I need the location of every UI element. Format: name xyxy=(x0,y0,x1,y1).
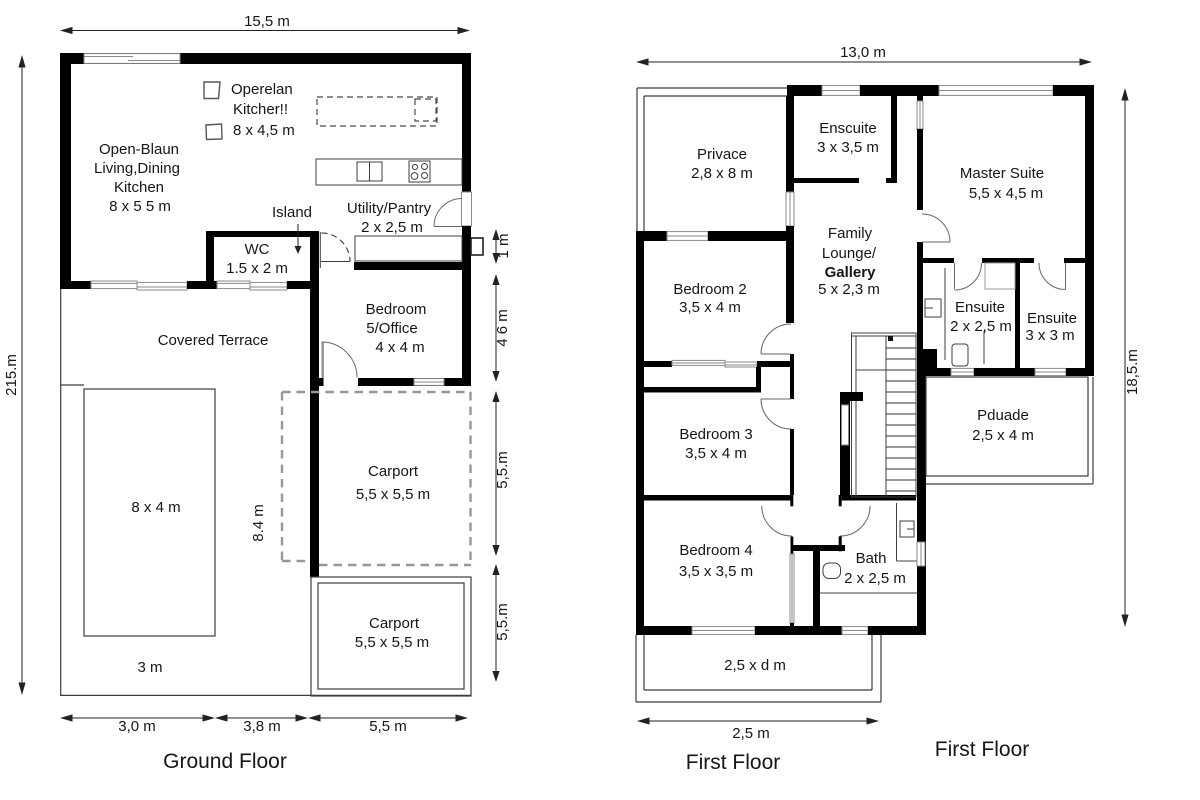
svg-text:Open-Blaun: Open-Blaun xyxy=(99,141,179,158)
svg-text:Bath: Bath xyxy=(856,550,887,567)
svg-text:3,5 x 4 m: 3,5 x 4 m xyxy=(679,299,741,316)
svg-text:Bedroom 3: Bedroom 3 xyxy=(679,426,752,443)
svg-text:Master Suite: Master Suite xyxy=(960,165,1044,182)
svg-text:5/Office: 5/Office xyxy=(366,320,417,337)
svg-text:1 m: 1 m xyxy=(495,233,512,258)
svg-text:3 x 3 m: 3 x 3 m xyxy=(1025,327,1074,344)
svg-text:215.m: 215.m xyxy=(3,354,20,396)
svg-text:Privace: Privace xyxy=(697,146,747,163)
svg-text:Bedroom: Bedroom xyxy=(366,301,427,318)
svg-text:Carport: Carport xyxy=(368,463,419,480)
svg-text:4 6 m: 4 6 m xyxy=(494,309,511,347)
svg-text:2 x 2,5 m: 2 x 2,5 m xyxy=(361,219,423,236)
svg-text:Bedroom 4: Bedroom 4 xyxy=(679,542,752,559)
svg-text:2,5 m: 2,5 m xyxy=(732,725,770,742)
svg-text:Ground Floor: Ground Floor xyxy=(163,750,287,773)
svg-text:2,5 x 4 m: 2,5 x 4 m xyxy=(972,427,1034,444)
svg-text:3,5 x 3,5 m: 3,5 x 3,5 m xyxy=(679,563,753,580)
svg-text:4 x 4 m: 4 x 4 m xyxy=(375,339,424,356)
svg-text:Pduade: Pduade xyxy=(977,407,1029,424)
svg-text:5,5 x 4,5 m: 5,5 x 4,5 m xyxy=(969,185,1043,202)
svg-text:Living,Dining: Living,Dining xyxy=(94,160,180,177)
svg-text:3,8 m: 3,8 m xyxy=(243,718,281,735)
svg-text:Ensuite: Ensuite xyxy=(1027,310,1077,327)
svg-text:Ensuite: Ensuite xyxy=(955,299,1005,316)
svg-text:8.4 m: 8.4 m xyxy=(250,504,267,542)
svg-text:WC: WC xyxy=(245,241,270,258)
svg-text:5,5 x 5,5 m: 5,5 x 5,5 m xyxy=(356,486,430,503)
svg-text:Island: Island xyxy=(272,204,312,221)
svg-text:15,5 m: 15,5 m xyxy=(244,13,290,30)
svg-text:Family: Family xyxy=(828,225,873,242)
svg-text:Enscuite: Enscuite xyxy=(819,120,877,137)
svg-text:3,5 x 4 m: 3,5 x 4 m xyxy=(685,445,747,462)
svg-text:First Floor: First Floor xyxy=(935,738,1030,761)
svg-text:18,5.m: 18,5.m xyxy=(1124,349,1141,395)
svg-text:Covered Terrace: Covered Terrace xyxy=(158,332,269,349)
svg-text:Utility/Pantry: Utility/Pantry xyxy=(347,200,432,217)
svg-text:First Floor: First Floor xyxy=(686,751,781,774)
svg-text:Operelan: Operelan xyxy=(231,81,293,98)
svg-text:2,5 x d m: 2,5 x d m xyxy=(724,657,786,674)
svg-text:8 x 4 m: 8 x 4 m xyxy=(131,499,180,516)
svg-text:Carport: Carport xyxy=(369,615,420,632)
svg-text:Kitchen: Kitchen xyxy=(114,179,164,196)
svg-text:2 x 2,5 m: 2 x 2,5 m xyxy=(844,570,906,587)
svg-text:3 m: 3 m xyxy=(137,659,162,676)
svg-text:3,0 m: 3,0 m xyxy=(118,718,156,735)
svg-text:Gallery: Gallery xyxy=(825,264,877,281)
svg-text:2,8 x 8 m: 2,8 x 8 m xyxy=(691,165,753,182)
svg-text:1.5 x 2 m: 1.5 x 2 m xyxy=(226,260,288,277)
svg-text:13,0 m: 13,0 m xyxy=(840,44,886,61)
svg-text:Bedroom 2: Bedroom 2 xyxy=(673,281,746,298)
svg-text:8 x 5 5 m: 8 x 5 5 m xyxy=(109,198,171,215)
svg-text:5 x 2,3 m: 5 x 2,3 m xyxy=(818,281,880,298)
svg-text:8 x 4,5 m: 8 x 4,5 m xyxy=(233,122,295,139)
svg-text:Lounge/: Lounge/ xyxy=(822,245,877,262)
svg-text:5,5.m: 5,5.m xyxy=(494,451,511,489)
svg-text:5,5 x 5,5 m: 5,5 x 5,5 m xyxy=(355,634,429,651)
svg-text:5,5.m: 5,5.m xyxy=(494,603,511,641)
svg-text:2 x 2,5 m: 2 x 2,5 m xyxy=(950,318,1012,335)
svg-text:5,5 m: 5,5 m xyxy=(369,718,407,735)
svg-text:Kitcher!!: Kitcher!! xyxy=(233,101,288,118)
svg-text:3 x 3,5 m: 3 x 3,5 m xyxy=(817,139,879,156)
